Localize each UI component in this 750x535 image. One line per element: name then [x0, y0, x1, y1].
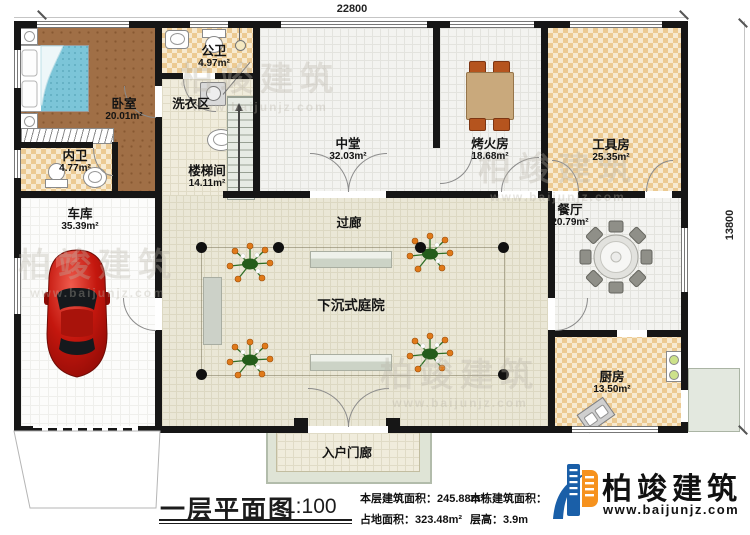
bedroom-nook-floor: [118, 142, 155, 191]
dimension-tick: [738, 18, 748, 28]
sink-icon: [165, 30, 189, 49]
room-name: 洗衣区: [172, 97, 210, 111]
table: [466, 72, 514, 120]
wall: [253, 21, 260, 198]
title-underline: [159, 519, 352, 521]
room-area: 25.35m²: [592, 152, 630, 163]
courtyard-planter: [203, 277, 222, 345]
stat-label: 本层建筑面积：: [360, 493, 437, 505]
room-label-entry-porch: 入户门廊: [322, 446, 372, 460]
dimension-top-width: 22800: [322, 3, 382, 15]
room-area: 4.97m²: [198, 58, 230, 69]
room-label-laundry: 洗衣区: [172, 97, 210, 111]
room-name: 工具房: [592, 138, 630, 152]
room-label-courtyard: 下沉式庭院: [317, 298, 385, 313]
room-name: 入户门廊: [322, 446, 372, 460]
dimension-tick: [679, 10, 689, 20]
room-area: 4.77m²: [59, 163, 91, 174]
door-opening: [552, 191, 578, 198]
column: [273, 242, 284, 253]
wall: [14, 142, 93, 148]
column: [415, 242, 426, 253]
window: [281, 21, 427, 28]
wall: [215, 73, 253, 79]
door-opening: [155, 86, 162, 117]
room-name: 厨房: [593, 370, 630, 384]
floor-plan-canvas: 柏竣建筑www.baijunjz.com 柏竣建筑www.baijunjz.co…: [0, 0, 750, 535]
plant-cluster: [224, 337, 276, 383]
room-label-kitchen: 厨房13.50m²: [593, 370, 630, 395]
door-opening: [498, 191, 538, 198]
room-label-tool-room: 工具房25.35m²: [592, 138, 630, 163]
bed: [19, 45, 89, 112]
stat-value: 323.48m²: [415, 514, 462, 526]
room-label-stairwell: 楼梯间14.11m²: [188, 164, 226, 189]
wall: [14, 191, 162, 198]
room-name: 烤火房: [471, 137, 509, 151]
wall: [681, 21, 688, 433]
wall: [162, 73, 183, 79]
stove-icon: [666, 351, 682, 382]
central-hall-floor: [260, 28, 440, 191]
room-label-fire-room: 烤火房18.68m²: [471, 137, 509, 162]
door-opening: [617, 330, 647, 337]
door-opening: [681, 390, 688, 422]
room-area: 20.79m²: [551, 217, 588, 228]
window: [572, 426, 658, 433]
car-top-view: [44, 248, 110, 380]
door-opening: [548, 298, 555, 330]
chair: [493, 118, 510, 131]
wall: [433, 28, 440, 148]
dimension-line-right: [744, 21, 745, 433]
stat-label: 层高：: [470, 514, 503, 526]
entrance-opening: [308, 426, 388, 433]
courtyard-bench-top: [310, 251, 392, 268]
dimension-line-top: [14, 17, 688, 18]
room-label-dining: 餐厅20.79m²: [551, 203, 588, 228]
room-label-corridor: 过廊: [336, 216, 361, 230]
stair-arrow-head: [235, 103, 243, 111]
door-opening: [155, 298, 162, 330]
room-area: 14.11m²: [188, 178, 226, 189]
plan-scale: 1:100: [284, 495, 337, 519]
driveway-ramp: [10, 430, 164, 510]
column: [196, 369, 207, 380]
kitchen-side-porch: [688, 368, 740, 432]
plant-cluster: [224, 241, 276, 287]
room-name: 下沉式庭院: [317, 298, 385, 313]
room-name: 内卫: [59, 149, 91, 163]
room-area: 13.50m²: [593, 384, 630, 395]
window: [570, 21, 662, 28]
dimension-right-height: 13800: [724, 195, 738, 255]
toilet-tank: [45, 179, 68, 188]
column: [498, 369, 509, 380]
stat-building-area: 本栋建筑面积：: [470, 490, 547, 506]
window: [14, 50, 21, 88]
room-label-central-hall: 中堂32.03m²: [329, 137, 366, 162]
chair: [469, 118, 486, 131]
window: [681, 228, 688, 292]
nightstand: [20, 28, 38, 45]
window: [14, 258, 21, 314]
room-name: 车库: [61, 207, 98, 221]
room-name: 中堂: [329, 137, 366, 151]
courtyard-bench-bottom: [310, 354, 392, 371]
wall: [155, 21, 162, 433]
title-underline-2: [159, 523, 352, 524]
plant-cluster: [404, 331, 456, 377]
stat-label: 占地面积：: [360, 514, 415, 526]
room-area: 20.01m²: [105, 111, 142, 122]
room-name: 公卫: [198, 44, 230, 58]
room-label-public-bath: 公卫4.97m²: [198, 44, 230, 69]
door-opening: [310, 191, 386, 198]
room-label-inner-bath: 内卫4.77m²: [59, 149, 91, 174]
window: [190, 21, 228, 28]
room-label-garage: 车库35.39m²: [61, 207, 98, 232]
stat-label: 本栋建筑面积：: [470, 493, 547, 505]
room-label-bedroom: 卧室20.01m²: [105, 97, 142, 122]
room-area: 35.39m²: [61, 221, 98, 232]
window: [450, 21, 534, 28]
window: [14, 150, 21, 178]
door-opening: [645, 191, 672, 198]
room-name: 过廊: [336, 216, 361, 230]
stat-floor-area: 本层建筑面积：245.88m²: [360, 490, 484, 506]
dimension-tick: [37, 10, 47, 20]
pendant-light-icon: [235, 40, 246, 51]
staircase: [227, 96, 255, 200]
stat-site-area: 占地面积：323.48m²: [360, 511, 462, 527]
room-area: 32.03m²: [329, 151, 366, 162]
room-name: 卧室: [105, 97, 142, 111]
column: [498, 242, 509, 253]
room-name: 餐厅: [551, 203, 588, 217]
company-logo-icon: [551, 461, 599, 523]
wall: [541, 21, 548, 198]
room-area: 18.68m²: [471, 151, 509, 162]
column: [196, 242, 207, 253]
wall: [223, 191, 260, 198]
window: [37, 21, 129, 28]
company-website: www.baijunjz.com: [603, 502, 739, 517]
room-name: 楼梯间: [188, 164, 226, 178]
stat-value: 3.9m: [503, 514, 528, 526]
plant-cluster: [404, 231, 456, 277]
stat-story-height: 层高：3.9m: [470, 511, 528, 527]
stair-arrow-stem: [238, 110, 240, 194]
